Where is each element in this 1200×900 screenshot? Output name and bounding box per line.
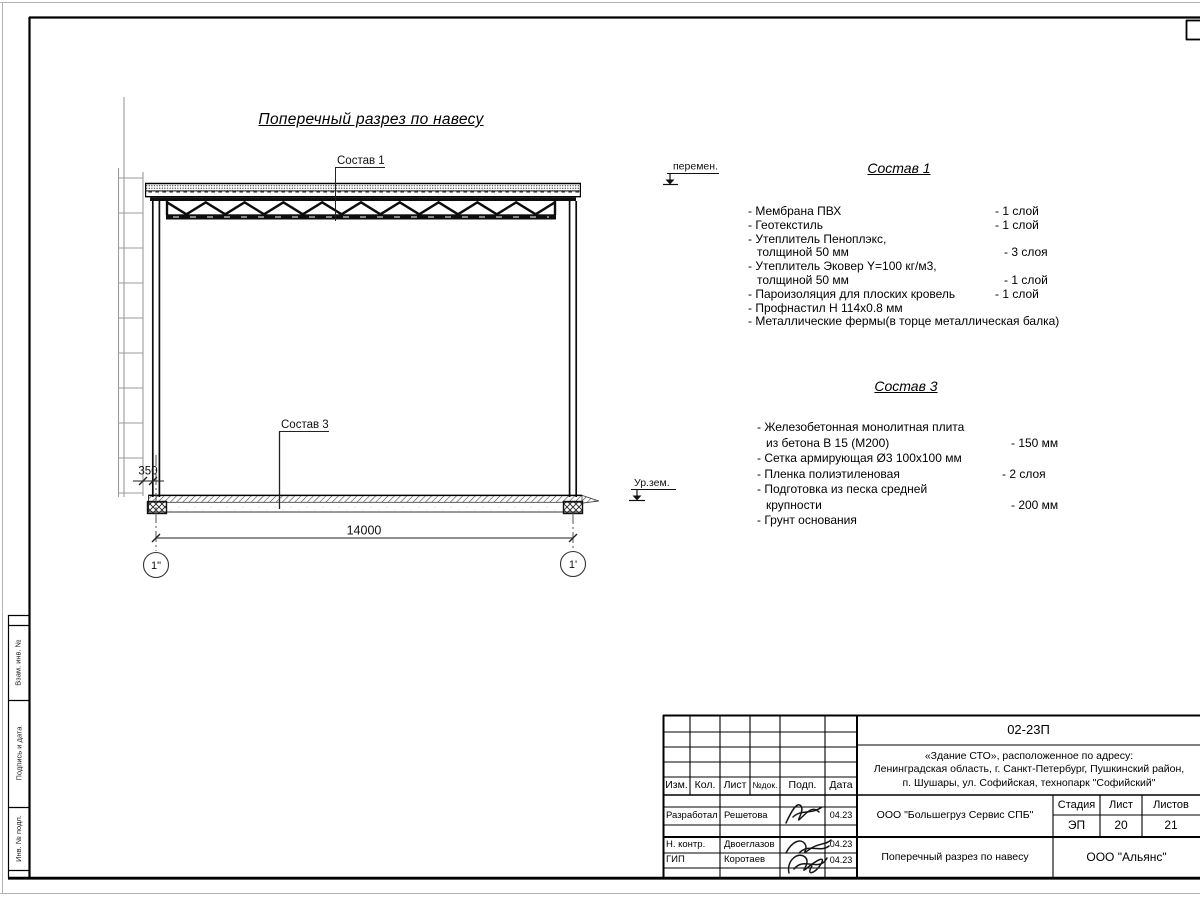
address-line: п. Шушары, ул. Софийская, технопарк "Соф… [903, 777, 1156, 791]
address-line: Ленинградская область, г. Санкт-Петербур… [874, 763, 1184, 777]
titleblock-role-0: Разработал [663, 807, 722, 825]
level-mark-ground: Ур.зем. [629, 477, 676, 501]
spec-item: - Утеплитель Эковер Y=100 кг/м3, [748, 260, 1050, 274]
titleblock-col-kol: Кол. [690, 777, 720, 795]
spec-item: - Подготовка из песка средней [757, 482, 1055, 498]
titleblock-date-1: 04.23 [825, 837, 857, 853]
titleblock-col-izm: Изм. [663, 777, 690, 795]
spec-item: - Сетка армирующая Ø3 100х100 мм [757, 451, 1055, 467]
titleblock-address: «Здание СТО», расположенное по адресу: Л… [860, 745, 1198, 795]
spec-item: - Грунт основания [757, 513, 1055, 529]
titleblock-sheet-label: Лист [1100, 795, 1142, 815]
titleblock-sheet-value: 20 [1100, 815, 1142, 837]
spec-item: - Пленка полиэтиленовая- 2 слоя [757, 467, 1055, 483]
dim-span-text: 14000 [347, 524, 382, 538]
spec-item: - Профнастил Н 114х0.8 мм [748, 302, 1050, 316]
spec-item: - Пароизоляция для плоских кровель- 1 сл… [748, 288, 1050, 302]
titleblock-role-1: Н. контр. [663, 837, 722, 853]
spec-item: - Утеплитель Пеноплэкс, [748, 233, 1050, 247]
sostav3-title: Состав 3 [757, 378, 1055, 396]
titleblock-col-ndok: №док. [750, 777, 780, 795]
sostav3-block: Состав 3 - Железобетонная монолитная пли… [757, 378, 1055, 529]
left-foundation-block [148, 502, 167, 514]
spec-item: толщиной 50 мм- 1 слой [748, 274, 1050, 288]
titleblock-sheets-label: Листов [1142, 795, 1200, 815]
roof-assembly [145, 183, 581, 201]
axis-bubble-right: 1' [561, 552, 586, 577]
roof-truss [166, 201, 556, 220]
margin-box-inv-podl: Инв. № подл. [8, 807, 29, 870]
margin-box-vzam: Взам. инв. № [8, 625, 29, 700]
spec-item: - Геотекстиль- 1 слой [748, 219, 1050, 233]
sostav1-list: - Мембрана ПВХ- 1 слой - Геотекстиль- 1 … [748, 205, 1050, 329]
sostav3-list: - Железобетонная монолитная плита из бет… [757, 420, 1055, 529]
titleblock-drawing-title: Поперечный разрез по навесу [860, 837, 1050, 879]
titleblock-doc-number: 02-23П [857, 715, 1200, 745]
titleblock-name-0: Решетова [721, 807, 782, 825]
level-mark-top: перемен. [663, 161, 719, 185]
level-top-text: перемен. [673, 161, 718, 173]
titleblock-stage-label: Стадия [1053, 795, 1100, 815]
titleblock-col-list: Лист [720, 777, 750, 795]
ground-slab [148, 495, 599, 512]
titleblock-col-data: Дата [825, 777, 857, 795]
level-ground-text: Ур.зем. [634, 477, 670, 489]
left-column [153, 201, 160, 497]
dimension-span: 14000 [152, 524, 577, 543]
drawing-main-title: Поперечный разрез по навесу [258, 111, 484, 129]
titleblock-org: ООО "Большегруз Сервис СПБ" [857, 795, 1053, 837]
margin-label: Взам. инв. № [14, 639, 23, 685]
sostav3-tag-text: Состав 3 [281, 419, 329, 431]
corner-stamp-box [1186, 20, 1200, 40]
margin-label: Инв. № подл. [14, 815, 23, 862]
titleblock-name-1: Двоеглазов [721, 837, 782, 853]
axis-left-label: 1" [151, 560, 161, 572]
sostav1-title: Состав 1 [748, 160, 1050, 178]
titleblock-sheets-value: 21 [1142, 815, 1200, 837]
axis-bubble-left: 1" [144, 553, 169, 578]
titleblock-date-0: 04.23 [825, 807, 857, 825]
titleblock-role-2: ГИП [663, 853, 722, 868]
spec-item: толщиной 50 мм- 3 слоя [748, 246, 1050, 260]
right-foundation-block [564, 502, 583, 514]
sostav1-tag-text: Состав 1 [337, 155, 385, 167]
margin-label: Подпись и дата [14, 727, 23, 781]
titleblock-stage-value: ЭП [1053, 815, 1100, 837]
existing-wall [119, 97, 144, 497]
right-column [570, 201, 577, 497]
titleblock-name-2: Коротаев [721, 853, 782, 868]
axis-right-label: 1' [569, 559, 577, 571]
spec-item: крупности- 200 мм [757, 498, 1055, 514]
dim-350-text: 350 [138, 466, 157, 478]
sostav1-block: Состав 1 - Мембрана ПВХ- 1 слой - Геотек… [748, 160, 1050, 329]
spec-item: - Мембрана ПВХ- 1 слой [748, 205, 1050, 219]
signature-gip [789, 855, 827, 873]
spec-item: из бетона В 15 (М200)- 150 мм [757, 436, 1055, 452]
titleblock-company: ООО "Альянс" [1053, 837, 1200, 879]
titleblock-col-podp: Подп. [780, 777, 825, 795]
drawing-sheet: 14000 350 1" 1' Состав 1 Состав 3 [0, 0, 1200, 900]
margin-box-podp-data: Подпись и дата [8, 700, 29, 807]
spec-item: - Металлические фермы(в торце металличес… [748, 315, 1050, 329]
titleblock-date-2: 04.23 [825, 853, 857, 868]
spec-item: - Железобетонная монолитная плита [757, 420, 1055, 436]
address-line: «Здание СТО», расположенное по адресу: [925, 750, 1133, 764]
